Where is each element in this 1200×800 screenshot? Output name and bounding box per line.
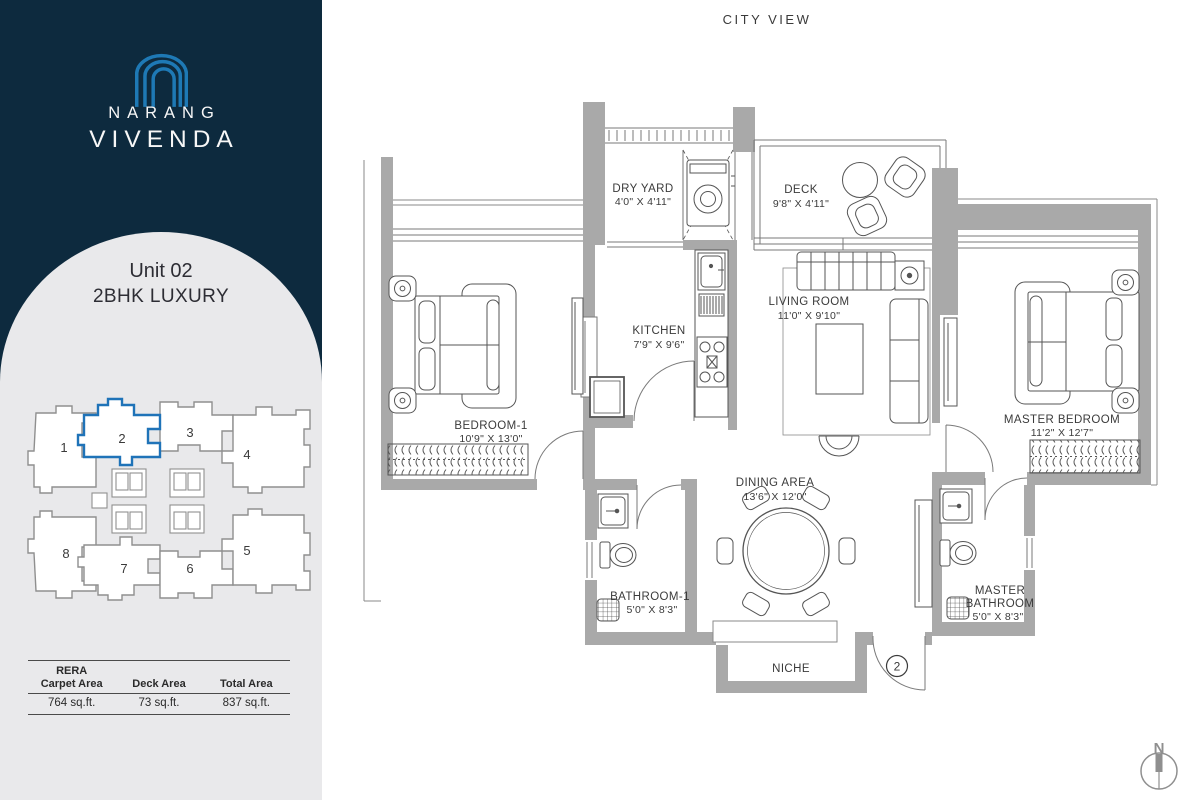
brand-logo — [0, 42, 322, 113]
key-label-4: 4 — [243, 447, 250, 462]
key-unit-6 — [160, 551, 233, 598]
brand-panel: NARANG VIVENDA Unit 02 2BHK LUXURY — [0, 0, 322, 800]
floor-plan: CITY VIEW — [322, 0, 1200, 800]
deck-chair-2 — [844, 193, 889, 238]
kitchen-door — [634, 361, 694, 421]
master-bedroom-label: MASTER BEDROOM — [1004, 414, 1120, 426]
bedroom1-dresser — [572, 298, 583, 394]
living-sofa-side — [890, 299, 928, 423]
rera-carpet-area-value: 764 sq.ft. — [28, 697, 115, 710]
brand-name-line2: VIVENDA — [0, 126, 322, 154]
kitchen-label: KITCHEN — [632, 325, 685, 337]
dining-area-dims: 13'6" X 12'0" — [743, 491, 806, 503]
master-bed — [1028, 292, 1139, 391]
bathroom1-dims: 5'0" X 8'3" — [627, 604, 678, 616]
total-area-value: 837 sq.ft. — [203, 697, 290, 710]
master-bathroom-label-line1: MASTER — [975, 585, 1025, 597]
bedroom1-bed — [415, 296, 499, 394]
bathroom1-window — [587, 542, 592, 578]
key-label-8: 8 — [62, 546, 69, 561]
living-room-dims: 11'0" X 9'10" — [778, 310, 840, 322]
svg-text:2: 2 — [894, 660, 901, 674]
area-table: RERA Carpet Area Deck Area Total Area 76… — [28, 660, 290, 715]
entrance-unit-badge: 2 — [887, 656, 908, 677]
key-unit-4 — [222, 407, 310, 493]
deck-table-icon — [843, 163, 878, 198]
master-bathroom-label-line2: BATHROOM — [966, 598, 1035, 610]
dry-yard-label: DRY YARD — [612, 183, 673, 195]
north-compass-icon: N — [1141, 740, 1177, 789]
niche-label: NICHE — [772, 663, 810, 675]
master-bathroom-dims: 5'0" X 8'3" — [973, 611, 1024, 623]
arches-logo-icon — [135, 42, 188, 108]
living-room-label: LIVING ROOM — [768, 296, 849, 308]
deck-chair-1 — [881, 153, 928, 200]
living-lamp-table — [895, 261, 924, 290]
bedroom1-window — [393, 227, 583, 243]
master-bedroom-window — [958, 234, 1138, 250]
dry-yard-dims: 4'0" X 4'11" — [615, 196, 671, 208]
key-label-6: 6 — [186, 561, 193, 576]
dining-table-icon — [743, 508, 829, 594]
deck-dims: 9'8" X 4'11" — [773, 198, 829, 210]
key-lift-cores — [92, 469, 204, 533]
master-bathroom-window — [1027, 538, 1032, 568]
deck-sliding-door — [754, 238, 932, 250]
bathroom1-sink-icon — [598, 494, 628, 528]
deck-area-header: Deck Area — [115, 678, 202, 691]
deck-boundary — [754, 140, 946, 250]
niche-shelf — [713, 621, 837, 642]
key-label-3: 3 — [186, 425, 193, 440]
master-bathroom-toilet-icon — [940, 540, 976, 566]
master-bedroom-door — [946, 425, 993, 472]
bedroom1-nightstands — [389, 276, 416, 413]
dry-yard-door — [607, 242, 683, 247]
deck-area-value: 73 sq.ft. — [115, 697, 202, 710]
floorplan-brochure-page: NARANG VIVENDA Unit 02 2BHK LUXURY — [0, 0, 1200, 800]
bathroom1-door — [637, 485, 681, 529]
rera-carpet-area-header: RERA Carpet Area — [28, 665, 115, 690]
master-tv-unit — [944, 318, 957, 406]
deck-label: DECK — [784, 184, 818, 196]
unit-title: Unit 02 — [0, 260, 322, 283]
living-rug — [816, 324, 863, 394]
living-console — [819, 436, 859, 456]
dining-area-label: DINING AREA — [736, 477, 815, 489]
bedroom1-dims: 10'9" X 13'0" — [459, 433, 522, 445]
key-unit-5 — [222, 509, 310, 593]
key-label-5: 5 — [243, 543, 250, 558]
master-bathroom-door — [985, 478, 1027, 520]
kitchen-counter — [695, 250, 728, 417]
dry-yard-louver — [605, 128, 733, 143]
area-table-value-row: 764 sq.ft. 73 sq.ft. 837 sq.ft. — [28, 693, 290, 715]
master-bathroom-sink-icon — [940, 489, 972, 523]
total-area-header: Total Area — [203, 678, 290, 691]
area-table-header-row: RERA Carpet Area Deck Area Total Area — [28, 660, 290, 693]
dining-chairs — [717, 485, 855, 618]
bedroom1-door — [535, 431, 583, 479]
bathroom1-label: BATHROOM-1 — [610, 591, 690, 603]
brand-name-line1: NARANG — [0, 104, 322, 123]
master-wardrobe — [1030, 440, 1140, 473]
master-bedroom-dims: 11'2" X 12'7" — [1031, 427, 1093, 439]
dry-deck-divider — [735, 152, 752, 240]
key-label-1: 1 — [60, 440, 67, 455]
bedroom1-wardrobe — [388, 444, 528, 475]
key-label-2: 2 — [118, 431, 125, 446]
dining-sideboard — [915, 500, 932, 607]
bathroom1-toilet-icon — [600, 542, 636, 568]
washing-machine-icon — [687, 160, 735, 226]
key-plan: 1 2 3 4 5 6 7 8 — [0, 393, 322, 613]
unit-subtitle: 2BHK LUXURY — [0, 286, 322, 308]
city-view-label: CITY VIEW — [723, 12, 812, 27]
living-sofa-top — [797, 252, 895, 290]
key-unit-3 — [160, 402, 233, 451]
kitchen-dims: 7'9" X 9'6" — [634, 339, 685, 351]
bedroom1-label: BEDROOM-1 — [454, 420, 527, 432]
key-label-7: 7 — [120, 561, 127, 576]
walls — [381, 102, 1151, 693]
kitchen-shaft — [590, 377, 624, 417]
